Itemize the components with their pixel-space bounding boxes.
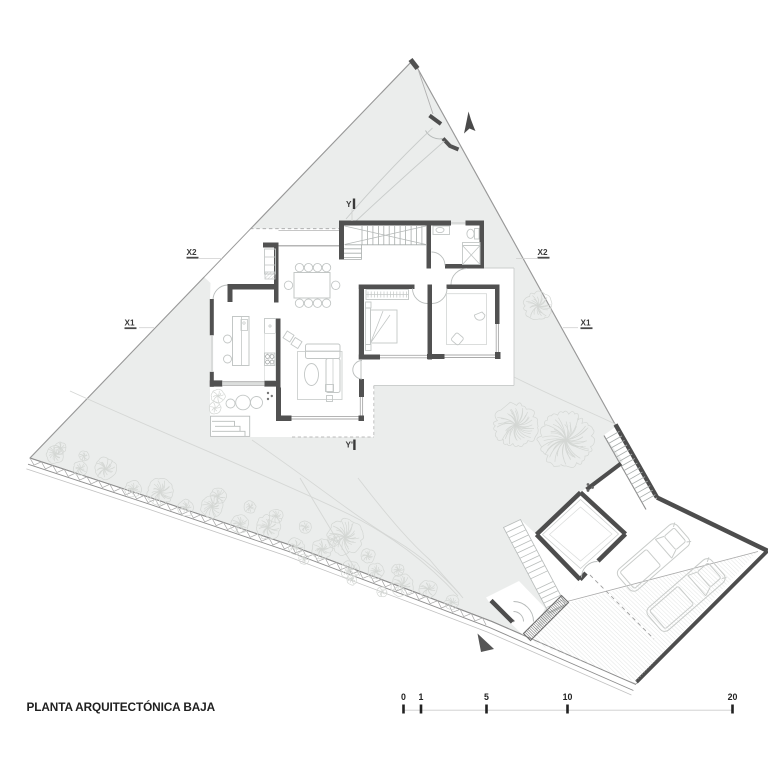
svg-text:X1: X1 <box>125 319 135 328</box>
svg-text:PLANTA ARQUITECTÓNICA BAJA: PLANTA ARQUITECTÓNICA BAJA <box>27 700 216 714</box>
svg-text:X2: X2 <box>187 248 197 257</box>
svg-text:0: 0 <box>401 692 406 702</box>
svg-text:5: 5 <box>484 692 489 702</box>
svg-text:Y': Y' <box>346 441 353 450</box>
svg-text:X1: X1 <box>581 319 591 328</box>
svg-text:20: 20 <box>728 692 738 702</box>
svg-text:X2: X2 <box>538 248 548 257</box>
svg-text:10: 10 <box>563 692 573 702</box>
svg-text:1: 1 <box>419 692 424 702</box>
svg-text:Y: Y <box>346 200 352 209</box>
